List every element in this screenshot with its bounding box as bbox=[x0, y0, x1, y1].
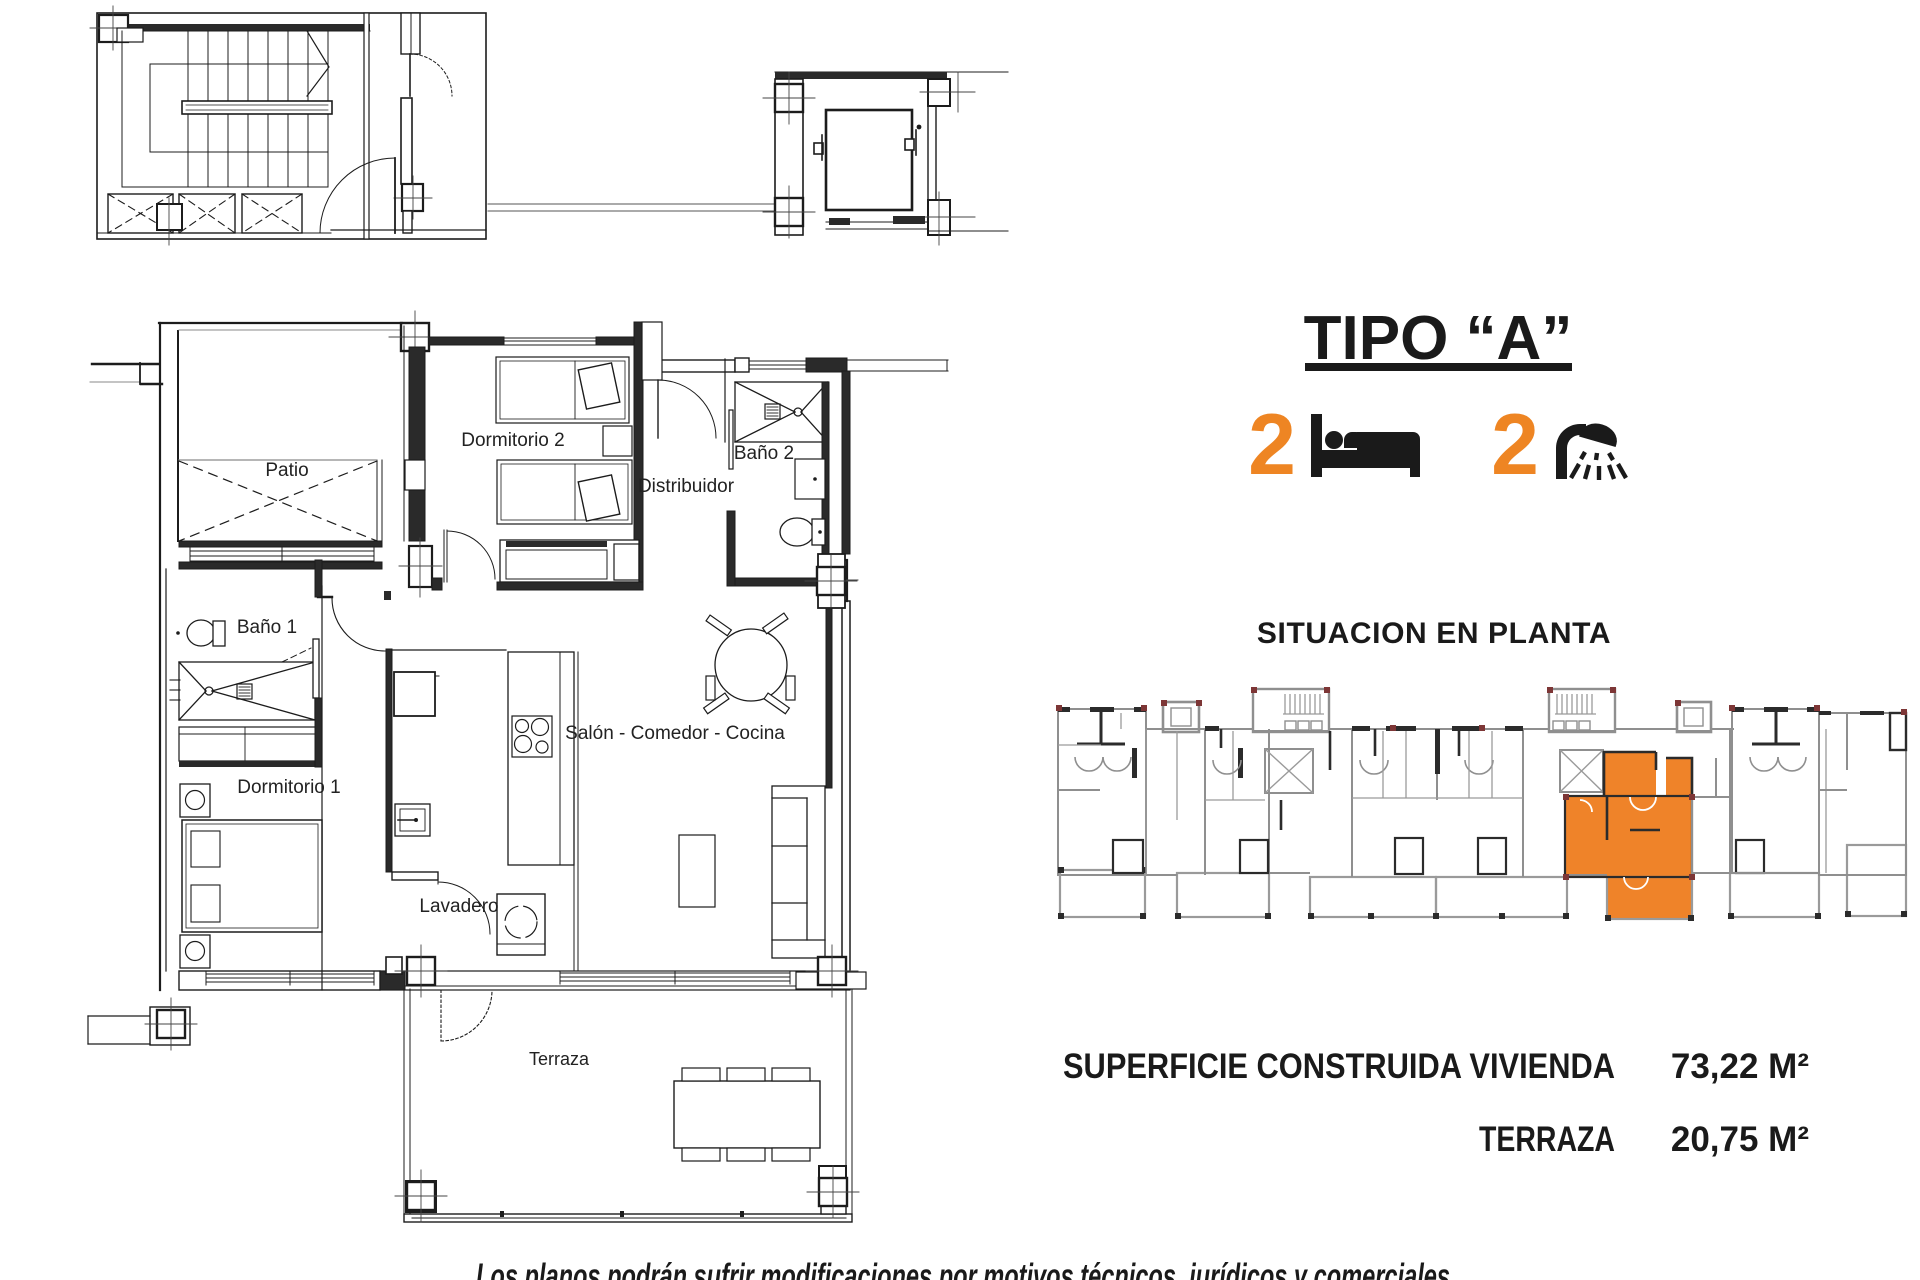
svg-text:TERRAZA: TERRAZA bbox=[1479, 1120, 1615, 1159]
svg-text:Patio: Patio bbox=[265, 460, 308, 481]
svg-text:Terraza: Terraza bbox=[529, 1049, 590, 1069]
svg-text:SUPERFICIE CONSTRUIDA VIVIENDA: SUPERFICIE CONSTRUIDA VIVIENDA bbox=[1063, 1047, 1615, 1086]
svg-text:SITUACION EN PLANTA: SITUACION EN PLANTA bbox=[1257, 617, 1611, 650]
svg-text:Salón - Comedor - Cocina: Salón - Comedor - Cocina bbox=[565, 723, 785, 744]
svg-text:Baño 2: Baño 2 bbox=[734, 443, 794, 464]
svg-text:Los planos podrán sufrir modif: Los planos podrán sufrir modificaciones … bbox=[476, 1257, 1450, 1280]
svg-text:Lavadero: Lavadero bbox=[419, 896, 498, 917]
svg-text:2: 2 bbox=[1491, 397, 1539, 493]
svg-text:Distribuidor: Distribuidor bbox=[638, 476, 735, 497]
svg-text:Dormitorio 2: Dormitorio 2 bbox=[461, 430, 564, 451]
svg-text:73,22 M²: 73,22 M² bbox=[1671, 1047, 1809, 1086]
svg-text:2: 2 bbox=[1248, 397, 1296, 493]
svg-text:20,75 M²: 20,75 M² bbox=[1671, 1120, 1809, 1159]
svg-text:Dormitorio 1: Dormitorio 1 bbox=[237, 777, 340, 798]
svg-text:TIPO “A”: TIPO “A” bbox=[1304, 304, 1573, 373]
svg-text:Baño 1: Baño 1 bbox=[237, 617, 297, 638]
